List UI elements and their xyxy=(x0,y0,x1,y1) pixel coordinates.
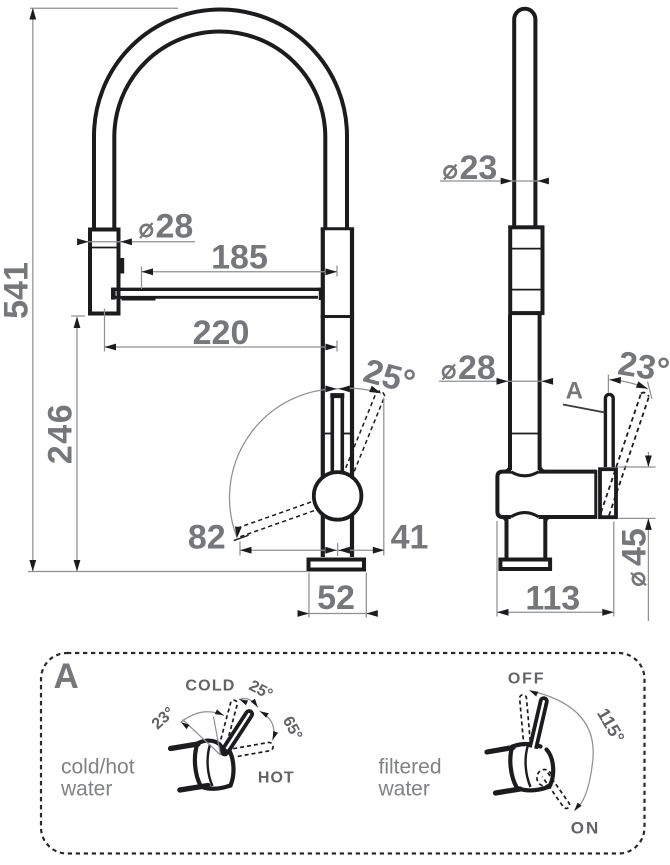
svg-text:115°: 115° xyxy=(593,705,628,746)
svg-text:246: 246 xyxy=(42,403,80,464)
svg-text:COLD: COLD xyxy=(185,678,235,695)
svg-text:41: 41 xyxy=(391,519,429,557)
svg-text:cold/hot: cold/hot xyxy=(61,756,135,779)
svg-text:52: 52 xyxy=(317,579,355,617)
svg-text:filtered: filtered xyxy=(379,756,442,779)
svg-text:113: 113 xyxy=(525,580,580,618)
svg-text:23°: 23° xyxy=(149,704,178,733)
svg-text:65°: 65° xyxy=(279,714,305,743)
svg-text:23: 23 xyxy=(460,149,498,187)
svg-text:25°: 25° xyxy=(360,352,420,402)
svg-text:45: 45 xyxy=(616,528,654,566)
svg-text:28: 28 xyxy=(458,349,496,387)
svg-text:28: 28 xyxy=(156,208,194,246)
svg-text:185: 185 xyxy=(211,239,268,277)
svg-text:water: water xyxy=(60,778,112,801)
svg-text:A: A xyxy=(54,657,79,696)
svg-text:541: 541 xyxy=(0,262,35,319)
svg-text:HOT: HOT xyxy=(258,770,295,787)
svg-text:OFF: OFF xyxy=(508,670,545,687)
svg-text:82: 82 xyxy=(188,519,226,557)
svg-text:220: 220 xyxy=(193,314,250,352)
svg-text:23°: 23° xyxy=(615,344,670,390)
svg-text:ON: ON xyxy=(571,819,601,838)
svg-text:water: water xyxy=(378,778,430,801)
svg-text:A: A xyxy=(566,378,583,405)
